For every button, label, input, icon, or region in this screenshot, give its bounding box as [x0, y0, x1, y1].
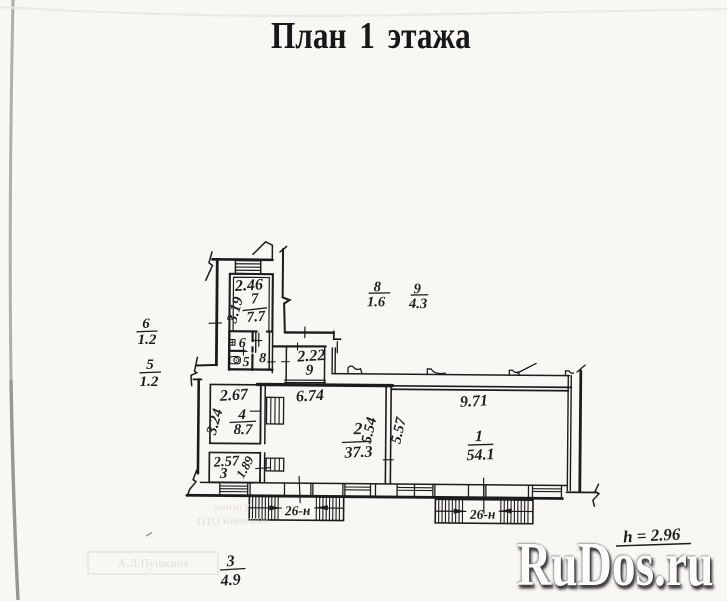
svg-text:2.67: 2.67: [218, 386, 249, 405]
svg-text:6: 6: [142, 316, 150, 332]
svg-text:5: 5: [243, 355, 250, 370]
svg-text:9: 9: [306, 363, 314, 379]
svg-text:1: 1: [475, 428, 483, 445]
svg-text:1.6: 1.6: [367, 294, 386, 310]
svg-text:26-н: 26-н: [284, 503, 311, 519]
svg-text:3: 3: [219, 466, 228, 482]
svg-text:8.7: 8.7: [234, 422, 253, 438]
svg-text:4: 4: [237, 407, 246, 423]
svg-text:5: 5: [146, 357, 154, 373]
svg-text:2.46: 2.46: [233, 276, 263, 295]
svg-text:9.71: 9.71: [459, 392, 488, 411]
svg-text:7.7: 7.7: [246, 308, 266, 325]
svg-text:4.3: 4.3: [408, 296, 427, 312]
svg-text:6.74: 6.74: [295, 387, 324, 406]
svg-text:6: 6: [239, 336, 246, 351]
svg-text:А.Л.Пушкина: А.Л.Пушкина: [118, 556, 189, 570]
svg-text:3: 3: [225, 553, 235, 571]
svg-text:4.9: 4.9: [219, 571, 241, 589]
svg-text:1.2: 1.2: [138, 332, 157, 348]
svg-text:8: 8: [259, 351, 266, 366]
svg-text:3.24: 3.24: [204, 407, 227, 438]
svg-text:26-н: 26-н: [469, 506, 496, 522]
svg-text:ПТО Киевоной: ПТО Киевоной: [197, 514, 269, 528]
svg-text:1.2: 1.2: [140, 374, 159, 390]
svg-text:жензр у: жензр у: [213, 500, 251, 513]
svg-text:37.3: 37.3: [343, 444, 373, 462]
svg-text:54.1: 54.1: [466, 446, 495, 464]
